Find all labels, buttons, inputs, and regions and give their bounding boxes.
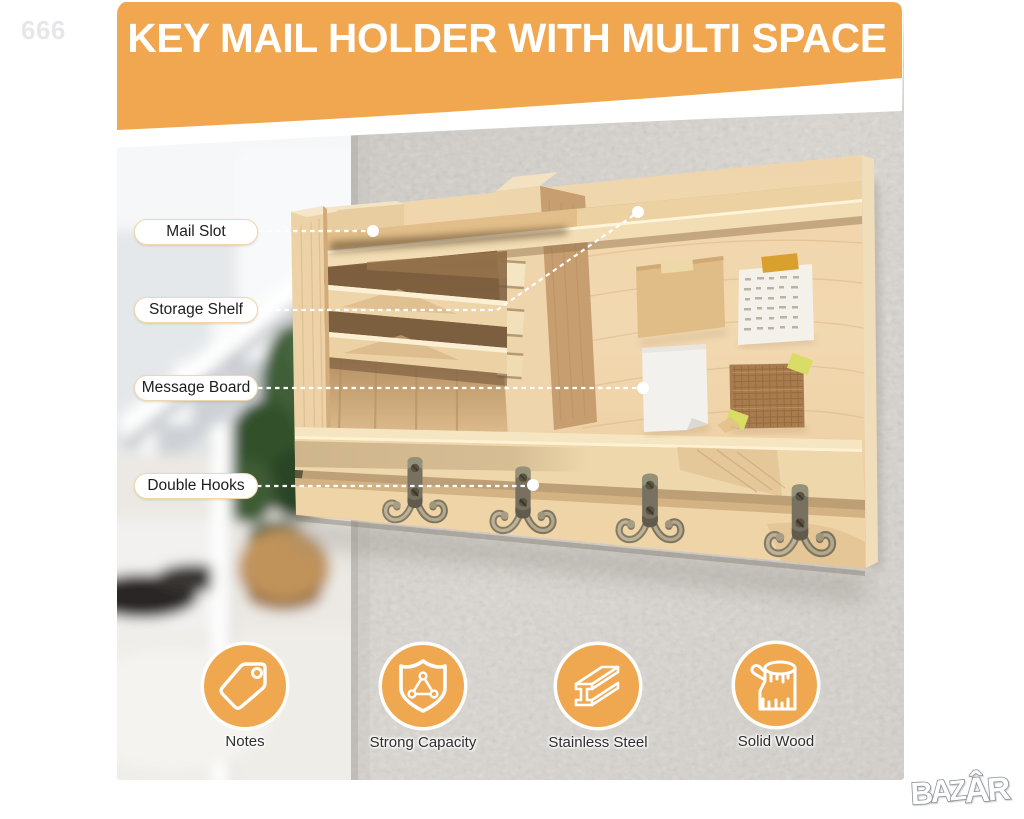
svg-text:R: R (986, 770, 1012, 808)
svg-text:KEY MAIL HOLDER WITH MULTI SPA: KEY MAIL HOLDER WITH MULTI SPACE (127, 15, 886, 61)
